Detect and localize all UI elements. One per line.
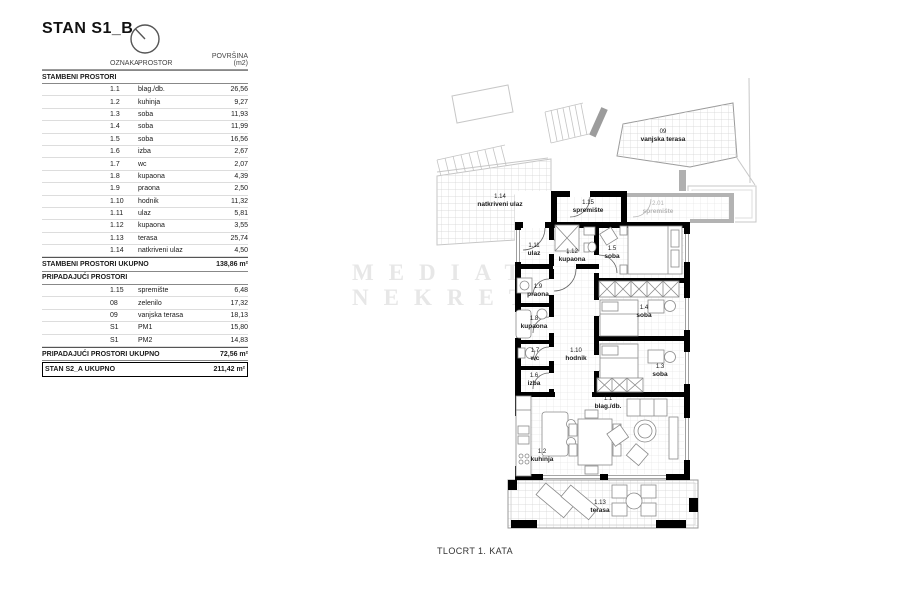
table-row: 1.6izba2,67 xyxy=(42,146,248,158)
col-header-prostor: PROSTOR xyxy=(138,60,206,67)
table-row: 1.14natkriveni ulaz4,50 xyxy=(42,245,248,257)
table-row: S1PM214,83 xyxy=(42,335,248,347)
table-row: 1.2kuhinja9,27 xyxy=(42,96,248,108)
table-row: 1.15spremište6,48 xyxy=(42,285,248,297)
room-label: 1.3soba xyxy=(652,363,667,379)
table-row: 1.5soba16,56 xyxy=(42,134,248,146)
table-row: 08zelenilo17,32 xyxy=(42,297,248,309)
room-label: 1.14natkriveni ulaz xyxy=(477,193,522,209)
table-row: 1.13terasa25,74 xyxy=(42,233,248,245)
north-compass-icon xyxy=(128,22,162,56)
room-label: 1.6izba xyxy=(528,372,541,388)
table-header-row: OZNAKA PROSTOR POVRŠINA (m2) xyxy=(42,54,248,70)
room-label: 09vanjska terasa xyxy=(641,128,686,144)
stambeni-total-row: STAMBENI PROSTORI UKUPNO 138,86 m² xyxy=(42,257,248,272)
room-label: 1.2kuhinja xyxy=(531,448,554,464)
floorplan-sheet: STAN S1_B OZNAKA PROSTOR POVRŠINA (m2) S… xyxy=(0,0,920,594)
room-label: 1.1blag./db. xyxy=(595,395,622,411)
table-row: 1.7wc2,07 xyxy=(42,158,248,170)
area-table: OZNAKA PROSTOR POVRŠINA (m2) STAMBENI PR… xyxy=(42,54,248,377)
table-row: 1.8kupaona4,39 xyxy=(42,171,248,183)
room-label: 2.01spremište xyxy=(643,200,674,216)
table-row: 1.1blag./db.26,56 xyxy=(42,84,248,96)
table-row: S1PM115,80 xyxy=(42,322,248,334)
grand-total-row: STAN S2_A UKUPNO 211,42 m² xyxy=(42,362,248,377)
table-row: 1.4soba11,99 xyxy=(42,121,248,133)
sheet-caption: TLOCRT 1. KATA xyxy=(395,546,555,556)
room-label: 1.15spremište xyxy=(573,199,604,215)
room-label: 1.12kupaona xyxy=(559,248,586,264)
section-header-pripadajuci: PRIPADAJUĆI PROSTORI xyxy=(42,272,248,285)
table-row: 1.10hodnik11,32 xyxy=(42,196,248,208)
room-label: 1.5soba xyxy=(604,245,619,261)
col-header-povrsina: POVRŠINA (m2) xyxy=(206,53,248,67)
table-row: 1.9praona2,50 xyxy=(42,183,248,195)
room-label: 1.4soba xyxy=(636,304,651,320)
room-label: 1.11ulaz xyxy=(528,242,541,258)
room-label: 1.9praona xyxy=(527,283,549,299)
area-table-panel: STAN S1_B OZNAKA PROSTOR POVRŠINA (m2) S… xyxy=(42,20,248,377)
room-label: 1.7wc xyxy=(531,347,540,363)
section-header-stambeni: STAMBENI PROSTORI xyxy=(42,70,248,84)
room-label: 1.8kupaona xyxy=(521,315,548,331)
table-row: 09vanjska terasa18,13 xyxy=(42,310,248,322)
context-wall-bar xyxy=(589,107,608,137)
pripadajuci-total-row: PRIPADAJUĆI PROSTORI UKUPNO 72,56 m² xyxy=(42,347,248,362)
room-label: 1.10hodnik xyxy=(565,347,586,363)
table-row: 1.12kupaona3,55 xyxy=(42,220,248,232)
col-header-oznaka: OZNAKA xyxy=(110,60,138,67)
table-row: 1.3soba11,93 xyxy=(42,109,248,121)
room-label: 1.13terasa xyxy=(590,499,609,515)
table-row: 1.11ulaz5,81 xyxy=(42,208,248,220)
